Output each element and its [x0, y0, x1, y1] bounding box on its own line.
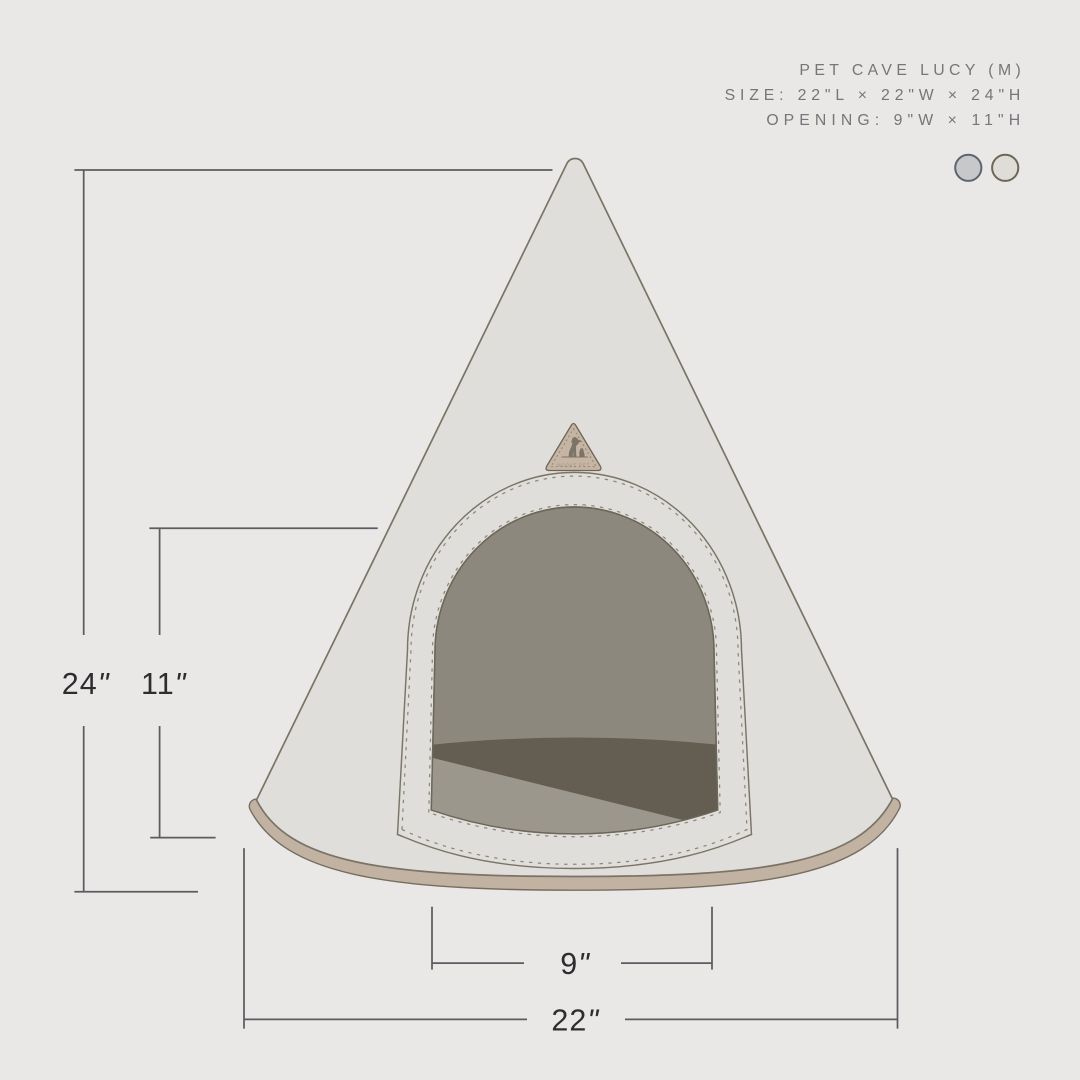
- svg-text:NOOKE PET: NOOKE PET: [558, 463, 591, 468]
- svg-text:24": 24": [62, 667, 110, 701]
- svg-text:9": 9": [560, 947, 590, 981]
- svg-text:PET CAVE LUCY (M): PET CAVE LUCY (M): [799, 62, 1025, 79]
- svg-text:OPENING: 9"W × 11"H: OPENING: 9"W × 11"H: [766, 112, 1025, 129]
- svg-text:22": 22": [551, 1004, 599, 1038]
- svg-text:SIZE: 22"L × 22"W × 24"H: SIZE: 22"L × 22"W × 24"H: [725, 87, 1026, 104]
- svg-text:11": 11": [141, 667, 187, 701]
